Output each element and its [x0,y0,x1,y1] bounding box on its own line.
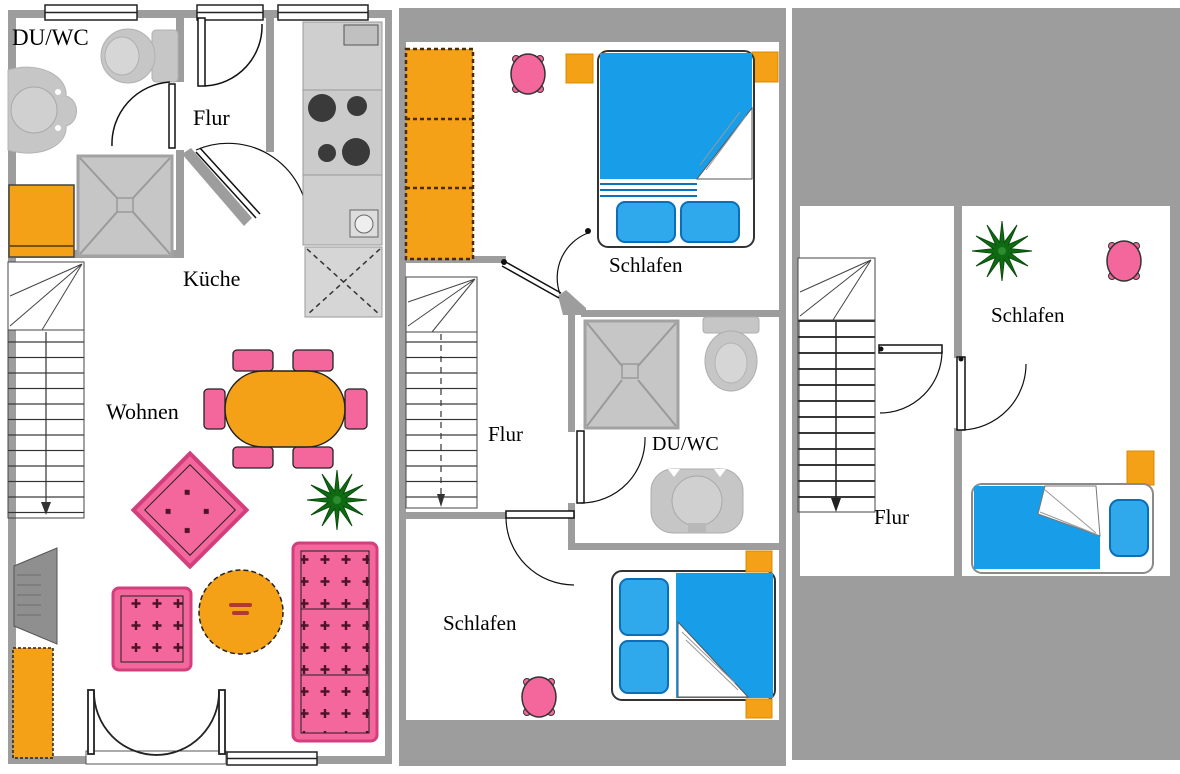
washing-machine-icon [9,185,74,257]
staircase-icon [8,262,84,518]
fridge-icon [305,247,382,317]
washbasin-icon [651,469,743,533]
hall-door-icon [879,345,943,413]
nightstand-icon [566,54,593,83]
chair-icon [345,389,367,429]
dining-set [204,350,367,468]
room-label-duwc-1: DU/WC [12,26,89,49]
sink-counter-icon [303,175,382,245]
double-bed-icon [612,571,775,700]
washbasin-icon [8,67,77,153]
table-inscription [232,611,249,615]
double-bed-icon [598,51,754,247]
shower-icon [78,156,172,256]
stool-icon [511,54,545,94]
room-label-kueche: Küche [183,268,240,290]
floor-plan-image: DU/WC Flur Küche Wohnen Schlafen Flur DU… [0,0,1180,774]
room-label-schlafen-1: Schlafen [609,255,682,276]
chair-icon [293,447,333,468]
bathroom-door-icon [577,431,645,503]
wardrobe-icon [406,49,473,259]
staircase-icon [406,277,477,508]
stool-icon [522,677,556,717]
toilet-icon [703,317,759,391]
pillow-icon [620,579,668,635]
room-label-flur-2: Flur [488,424,523,445]
room-label-flur-1: Flur [193,107,230,129]
pillow-icon [620,641,668,693]
room-label-schlafen-3: Schlafen [991,305,1064,326]
sideboard-icon [13,648,53,758]
nightstand-icon [746,551,772,572]
pillow-icon [681,202,739,242]
bedroom-door-icon [957,357,1026,431]
bedroom-door-icon [501,228,591,298]
chair-icon [204,389,225,429]
floor-2-plan [399,8,786,766]
room-label-wohnen: Wohnen [106,401,179,423]
nightstand-icon [1127,451,1154,485]
coffee-table-icon [199,570,283,654]
chair-icon [233,447,273,468]
floor-plan-drawing [0,0,1180,774]
pillow-icon [617,202,675,242]
kitchen-counter-icon [303,22,382,90]
rug-icon [133,453,246,566]
dining-table-icon [225,371,345,447]
entry-door-icon [198,18,262,86]
bedroom-door-icon [506,511,574,585]
armchair-icon [113,588,191,670]
toilet-icon [101,29,178,83]
chamfer-wall [182,148,252,226]
chair-icon [233,350,273,371]
plant-icon [972,221,1032,281]
room-label-flur-3: Flur [874,507,909,528]
shower-icon [585,321,678,428]
tv-icon [14,548,57,644]
single-bed-icon [972,484,1153,573]
pillow-icon [1110,500,1148,556]
staircase-icon [798,258,875,512]
stove-icon [303,90,382,175]
sofa-icon [293,543,377,741]
french-door-icon [86,690,226,764]
floor-3-plan [792,8,1180,760]
nightstand-icon [752,52,778,82]
bathroom-door-icon [112,82,175,148]
table-inscription [229,603,252,607]
stool-icon [1107,241,1141,281]
room-label-duwc-2: DU/WC [652,434,719,454]
nightstand-icon [746,699,772,718]
chair-icon [293,350,333,371]
plant-icon [307,470,367,530]
room-label-schlafen-2: Schlafen [443,613,516,634]
